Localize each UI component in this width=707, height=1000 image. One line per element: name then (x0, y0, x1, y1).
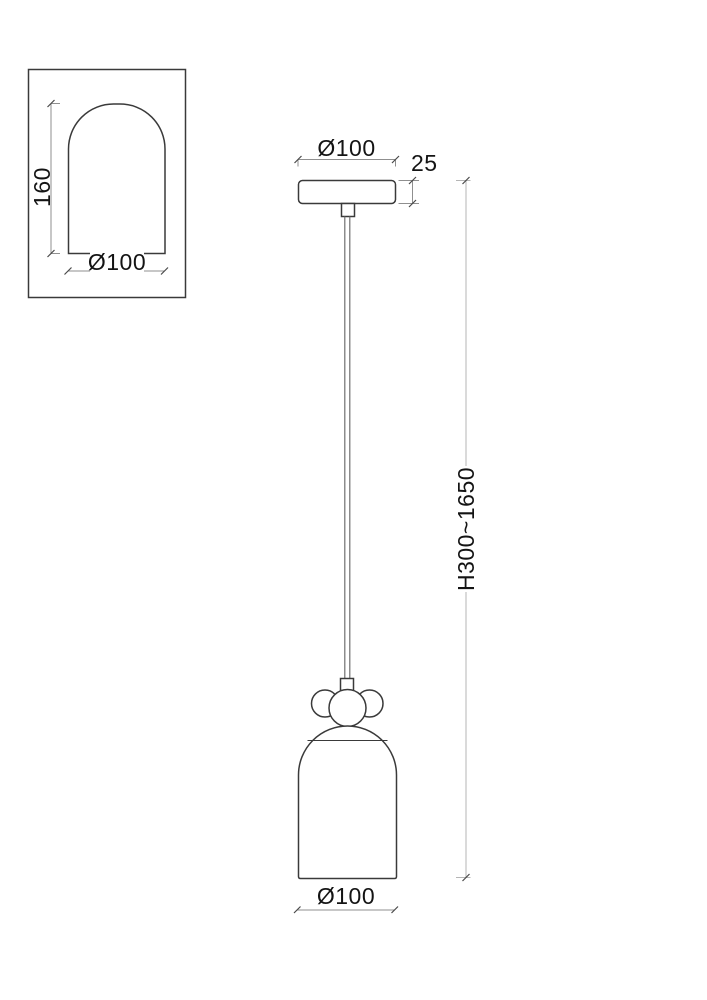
shade-diameter-dimension: Ø100 (294, 883, 398, 913)
overall-height-dimension: H300~1650 (451, 177, 480, 881)
canopy-height-dimension: 25 (399, 150, 438, 207)
shade-diameter-label: Ø100 (317, 883, 375, 909)
canopy-diameter-dimension: Ø100 (295, 135, 400, 167)
pendant-lamp-dimension-drawing: 160 Ø100 Ø100 (0, 0, 707, 1000)
canopy-height-label: 25 (411, 150, 438, 176)
inset-height-dimension: 160 (29, 100, 60, 257)
drawing-canvas: 160 Ø100 Ø100 (0, 0, 707, 1000)
ball-cluster (312, 690, 384, 727)
inset-diameter-label: Ø100 (88, 249, 146, 275)
inset-shade-profile (69, 104, 166, 254)
ceiling-canopy (299, 181, 396, 204)
canopy-diameter-label: Ø100 (317, 135, 375, 161)
lamp-shade (299, 726, 397, 879)
center-ball (329, 690, 366, 727)
suspension-cord (345, 217, 350, 680)
overall-height-label: H300~1650 (453, 467, 479, 591)
cord-grip (342, 204, 355, 217)
pendant-front-view: Ø100 (294, 135, 480, 913)
inset-height-label: 160 (29, 167, 55, 207)
inset-detail-view: 160 Ø100 (29, 70, 186, 298)
cord-connector (341, 679, 354, 691)
